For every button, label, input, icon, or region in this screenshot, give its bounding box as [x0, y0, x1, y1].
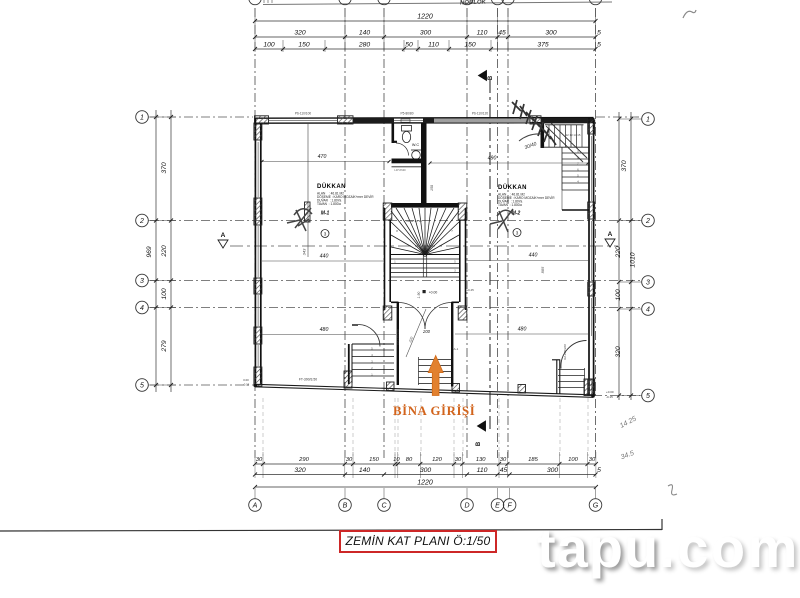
svg-text:30: 30: [256, 457, 263, 463]
svg-text:M-1: M-1: [321, 211, 330, 217]
svg-text:3: 3: [324, 232, 327, 237]
svg-text:30: 30: [589, 457, 596, 463]
svg-text:370: 370: [161, 162, 168, 174]
svg-text:L07-P100: L07-P100: [394, 168, 406, 172]
svg-text:2: 2: [645, 218, 650, 225]
svg-text:885: 885: [540, 266, 545, 273]
svg-text:490: 490: [488, 156, 497, 162]
svg-text:A-1: A-1: [454, 347, 459, 351]
svg-text:14 25: 14 25: [619, 415, 638, 429]
svg-text:K2-100/220: K2-100/220: [563, 344, 567, 360]
svg-text:45: 45: [500, 467, 508, 474]
svg-text:A: A: [252, 502, 258, 509]
svg-text:+0.45: +0.45: [466, 288, 474, 292]
svg-text:100: 100: [615, 289, 622, 301]
svg-text:D: D: [464, 502, 469, 509]
svg-text:220: 220: [161, 245, 168, 258]
svg-text:5: 5: [597, 42, 601, 49]
svg-text:P5-80/80: P5-80/80: [401, 112, 414, 116]
svg-text:45: 45: [498, 30, 506, 37]
svg-text:280: 280: [358, 42, 371, 49]
svg-text:120: 120: [432, 457, 442, 463]
svg-text:30: 30: [455, 457, 462, 463]
svg-text:FT-390/3.50: FT-390/3.50: [299, 378, 317, 382]
svg-text:1220: 1220: [417, 480, 433, 487]
svg-text:7: 7: [451, 229, 453, 233]
svg-text:30/40: 30/40: [524, 141, 538, 151]
svg-text:E: E: [495, 502, 500, 509]
svg-text:300: 300: [545, 30, 557, 37]
svg-text:2: 2: [139, 218, 144, 225]
svg-text:50: 50: [405, 42, 413, 49]
svg-text:320: 320: [294, 30, 306, 37]
svg-text:3: 3: [646, 279, 650, 286]
svg-text:140: 140: [359, 30, 371, 37]
svg-text:B: B: [488, 75, 494, 80]
svg-text:375: 375: [537, 42, 549, 49]
svg-text:P6-110/120: P6-110/120: [472, 112, 488, 116]
svg-text:5: 5: [597, 467, 601, 474]
svg-text:P6-110/100: P6-110/100: [295, 112, 311, 116]
svg-text:480: 480: [518, 327, 527, 333]
svg-text:1.90: 1.90: [417, 292, 421, 299]
svg-text:470: 470: [318, 154, 327, 160]
svg-text:B: B: [476, 441, 482, 446]
svg-text:30: 30: [346, 457, 353, 463]
svg-text:3: 3: [454, 269, 456, 272]
svg-text:1220: 1220: [417, 14, 433, 21]
svg-text:DÜKKAN: DÜKKAN: [317, 183, 346, 190]
svg-text:B: B: [343, 502, 348, 509]
svg-text:G: G: [593, 502, 599, 509]
svg-text:150: 150: [298, 42, 310, 49]
svg-text:320: 320: [294, 467, 306, 474]
svg-text:110: 110: [477, 30, 488, 37]
svg-text:3: 3: [516, 231, 519, 236]
svg-text:4: 4: [646, 306, 650, 313]
svg-text:110: 110: [428, 42, 439, 49]
svg-text:+0.00: +0.00: [429, 291, 438, 295]
svg-text:110: 110: [477, 467, 488, 474]
svg-text:969: 969: [146, 246, 153, 258]
svg-text:343: 343: [302, 248, 307, 255]
svg-text:10: 10: [393, 457, 400, 463]
svg-text:100: 100: [568, 457, 578, 463]
svg-text:5: 5: [646, 393, 650, 400]
svg-text:4: 4: [140, 305, 144, 312]
svg-text:A: A: [221, 232, 226, 239]
svg-text:140: 140: [359, 467, 371, 474]
svg-text:300: 300: [547, 467, 559, 474]
svg-text:1: 1: [140, 114, 144, 121]
svg-text:150: 150: [369, 457, 379, 463]
svg-text:NOBLOK: NOBLOK: [460, 0, 487, 6]
svg-text:-0.15: -0.15: [243, 383, 250, 387]
svg-text:TAVAN : 1.80Da: TAVAN : 1.80Da: [317, 202, 341, 206]
svg-text:34.5: 34.5: [620, 450, 635, 461]
svg-text:200: 200: [422, 329, 431, 334]
svg-text:12 13 14 15: 12 13 14 15: [566, 133, 581, 137]
svg-text:A: A: [608, 231, 613, 238]
svg-text:W.C: W.C: [412, 143, 419, 147]
svg-text:100: 100: [161, 288, 168, 300]
svg-text:30: 30: [500, 457, 507, 463]
svg-text:185: 185: [528, 457, 538, 463]
svg-text:DÜKKAN: DÜKKAN: [498, 184, 527, 191]
svg-text:5: 5: [454, 260, 456, 263]
svg-text:80: 80: [406, 457, 413, 463]
svg-text:8: 8: [396, 229, 398, 233]
svg-text:440: 440: [529, 253, 538, 259]
svg-text:3: 3: [140, 278, 144, 285]
svg-text:440: 440: [320, 254, 329, 260]
svg-text:10 12 13 14: 10 12 13 14: [406, 219, 422, 223]
svg-text:480: 480: [320, 327, 329, 333]
svg-text:130: 130: [476, 457, 486, 463]
svg-text:100: 100: [263, 42, 275, 49]
svg-text:150: 150: [430, 185, 434, 191]
svg-text:C: C: [381, 502, 387, 509]
svg-text:TAVAN : 1.80Da: TAVAN : 1.80Da: [498, 203, 522, 207]
svg-text:220: 220: [615, 246, 622, 259]
svg-text:5: 5: [140, 382, 144, 389]
svg-text:5: 5: [597, 30, 601, 37]
svg-text:320: 320: [615, 346, 622, 358]
svg-text:-0.15: -0.15: [606, 395, 613, 399]
svg-text:150: 150: [464, 42, 476, 49]
svg-text:1: 1: [646, 116, 650, 123]
svg-text:370: 370: [621, 160, 628, 172]
svg-text:300: 300: [420, 30, 432, 37]
svg-text:F: F: [507, 502, 512, 509]
svg-text:1010: 1010: [630, 252, 637, 267]
svg-text:0.00: 0.00: [243, 378, 249, 382]
svg-text:300: 300: [420, 467, 432, 474]
svg-text:290: 290: [298, 457, 309, 463]
svg-text:F2-160/220: F2-160/220: [396, 329, 400, 345]
svg-text:279: 279: [161, 340, 168, 353]
svg-text:+0.00: +0.00: [606, 390, 614, 394]
svg-text:1: 1: [394, 260, 396, 263]
